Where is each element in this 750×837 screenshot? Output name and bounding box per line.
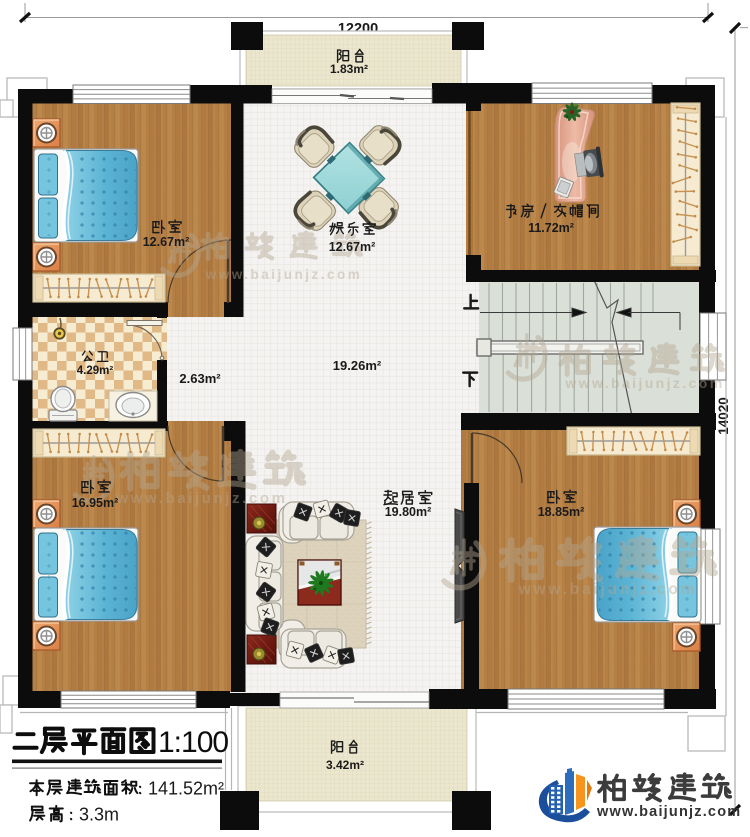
svg-text:www.baijunjz.com: www.baijunjz.com <box>564 375 724 391</box>
svg-text:12.67m²: 12.67m² <box>143 235 190 249</box>
svg-text:14020: 14020 <box>716 397 731 435</box>
svg-text:4.29m²: 4.29m² <box>77 365 114 377</box>
svg-text:19.26m²: 19.26m² <box>333 358 382 373</box>
svg-text:3.3m: 3.3m <box>79 805 119 825</box>
svg-text:16.95m²: 16.95m² <box>72 496 119 510</box>
svg-text:11.72m²: 11.72m² <box>528 221 574 235</box>
svg-text:www.baijunjz.com: www.baijunjz.com <box>115 490 287 507</box>
svg-text:3.42m²: 3.42m² <box>326 758 364 772</box>
svg-text:12.67m²: 12.67m² <box>329 240 376 254</box>
svg-text:18.85m²: 18.85m² <box>538 505 585 519</box>
svg-text:19.80m²: 19.80m² <box>385 505 432 519</box>
svg-text:2.63m²: 2.63m² <box>179 371 221 386</box>
svg-text:141.52m²: 141.52m² <box>148 779 224 799</box>
svg-text:www.baijunjz.com: www.baijunjz.com <box>205 267 363 282</box>
svg-text:www.baijunjz.com: www.baijunjz.com <box>518 581 698 598</box>
svg-text:1:100: 1:100 <box>158 726 228 759</box>
svg-text:www.baijunjz.com: www.baijunjz.com <box>596 804 741 820</box>
svg-text:1.83m²: 1.83m² <box>330 62 368 76</box>
